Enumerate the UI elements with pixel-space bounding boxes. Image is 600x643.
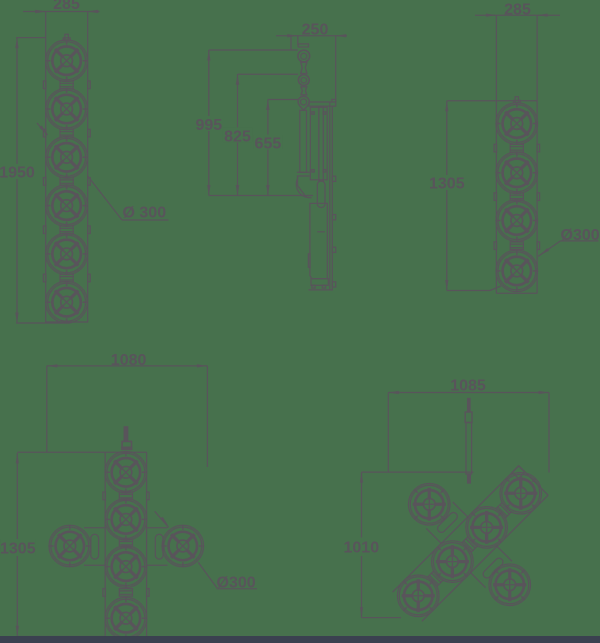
svg-text:1010: 1010 <box>344 539 380 556</box>
svg-text:1305: 1305 <box>429 176 465 193</box>
svg-text:1305: 1305 <box>0 541 36 558</box>
svg-text:1085: 1085 <box>450 378 486 395</box>
svg-text:Ø300: Ø300 <box>217 575 256 592</box>
svg-text:825: 825 <box>224 128 251 145</box>
svg-text:Ø 300: Ø 300 <box>123 205 167 222</box>
svg-text:995: 995 <box>195 117 222 134</box>
svg-text:Ø300: Ø300 <box>561 227 600 244</box>
svg-text:285: 285 <box>53 0 80 13</box>
svg-text:285: 285 <box>504 2 531 19</box>
svg-text:250: 250 <box>302 22 329 39</box>
svg-text:655: 655 <box>255 135 282 152</box>
svg-text:1950: 1950 <box>0 165 35 182</box>
svg-text:1080: 1080 <box>111 352 147 369</box>
